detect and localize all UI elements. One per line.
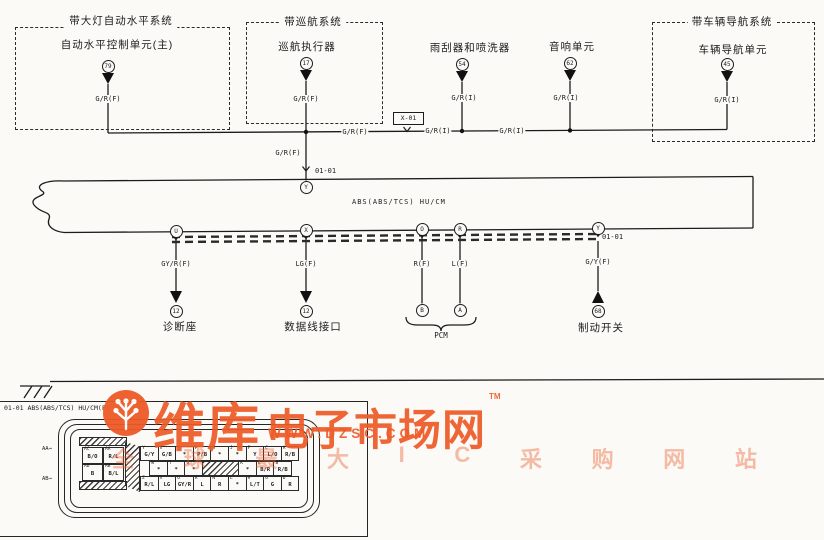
pinout-cell: L* bbox=[228, 476, 247, 491]
cruise-wire-label: G/R(F) bbox=[292, 95, 319, 103]
diag-pin: 12 bbox=[170, 305, 183, 318]
watermark-tagline: 全球最大IC采购网站 bbox=[112, 442, 757, 474]
main-wire-label-right: G/R(I) bbox=[498, 127, 525, 135]
watermark-tagline-char: C bbox=[454, 442, 470, 474]
watermark-tagline-char: 采 bbox=[520, 442, 542, 474]
datalink-label: 数据线接口 bbox=[284, 319, 342, 334]
pcm-pin-b: B bbox=[416, 304, 429, 317]
audio-wire-label: G/R(I) bbox=[552, 94, 579, 102]
watermark-tm: TM bbox=[489, 392, 501, 401]
ground-symbol bbox=[20, 386, 52, 398]
cruise-pin: 17 bbox=[300, 57, 313, 70]
watermark-tagline-char: I bbox=[399, 442, 405, 474]
pinout-cell: UGY/R bbox=[175, 476, 194, 491]
pcm-wire-label-a: L(F) bbox=[451, 260, 470, 268]
bus-label: ABS(ABS/TCS) HU/CM bbox=[352, 198, 446, 206]
pinout-cell: ZR/L bbox=[140, 476, 159, 491]
bus-bottom-pin-o: O bbox=[416, 223, 429, 236]
watermark-tagline-char: 购 bbox=[592, 442, 614, 474]
pinout-side-cell: ADB bbox=[82, 464, 103, 481]
watermark-tagline-char: 站 bbox=[735, 442, 757, 474]
bus-bottom-pin-x: X bbox=[300, 224, 313, 237]
audio-unit-label: 音响单元 bbox=[549, 39, 595, 54]
main-wire-label-left: G/R(F) bbox=[341, 128, 368, 136]
pinout-cell: DR bbox=[281, 476, 300, 491]
bus-bottom-pin-r: R bbox=[454, 223, 467, 236]
pcm-pin-a: A bbox=[454, 304, 467, 317]
watermark-tagline-char: 最 bbox=[255, 442, 277, 474]
headlamp-wire-label: G/R(F) bbox=[94, 95, 121, 103]
watermark-tagline-char: 网 bbox=[663, 442, 685, 474]
pinout-row: ZR/LXLGUGY/RRLNRL*HL/TGGDR bbox=[140, 476, 298, 491]
wiper-washer-label: 雨刮器和喷洗器 bbox=[430, 40, 511, 55]
pcm-label: PCM bbox=[434, 331, 448, 340]
bus-top-pin: Y bbox=[300, 181, 313, 194]
pcm-wire-label-b: R(F) bbox=[413, 260, 432, 268]
x01-junction-box: X-01 bbox=[393, 112, 424, 125]
pinout-cell: RL bbox=[193, 476, 212, 491]
brake-switch-label: 制动开关 bbox=[578, 320, 624, 335]
connector-marks bbox=[173, 127, 602, 240]
watermark-url: WWW.DZSC.COM bbox=[268, 426, 429, 441]
bus-bottom-pin-u: U bbox=[170, 225, 183, 238]
watermark-tagline-char: 大 bbox=[327, 442, 349, 474]
diag-socket-label: 诊断座 bbox=[163, 319, 198, 334]
brake-pin: 68 bbox=[592, 305, 605, 318]
navigation-system-title: 带车辆导航系统 bbox=[688, 14, 777, 29]
wiper-pin: 54 bbox=[456, 58, 469, 71]
headlamp-system-title: 带大灯自动水平系统 bbox=[65, 13, 177, 28]
connector-face-dashed-line bbox=[172, 234, 598, 242]
audio-pin: 62 bbox=[564, 57, 577, 70]
bus-top-connector-ref: 01-01 bbox=[315, 167, 336, 175]
diag-wire-label: GY/R(F) bbox=[160, 260, 192, 268]
main-wire-label-mid: G/R(I) bbox=[424, 127, 451, 135]
cruise-unit-label: 巡航执行器 bbox=[278, 39, 336, 54]
pinout-cell: NR bbox=[210, 476, 229, 491]
brake-wire-label: G/Y(F) bbox=[584, 258, 611, 266]
pinout-cell: HL/T bbox=[246, 476, 265, 491]
pinout-cell: XLG bbox=[158, 476, 177, 491]
watermark-tagline-char: 全 bbox=[112, 442, 134, 474]
cruise-system-title: 带巡航系统 bbox=[280, 14, 346, 29]
navigation-system-box bbox=[652, 22, 815, 142]
headlamp-unit-label: 自动水平控制单元(主) bbox=[61, 37, 174, 52]
navigation-wire-label: G/R(I) bbox=[713, 96, 740, 104]
wiper-wire-label: G/R(I) bbox=[450, 94, 477, 102]
side-block-bottom-cap bbox=[79, 481, 127, 490]
watermark-tagline-char: 球 bbox=[184, 442, 206, 474]
dzsc-logo-icon bbox=[103, 390, 149, 436]
cruise-lower-wire-label: G/R(F) bbox=[274, 149, 301, 157]
connector-face-ref: 01-01 bbox=[602, 233, 623, 241]
pinout-side-cell: ACB/O bbox=[82, 447, 103, 464]
pinout-title: 01-01 ABS(ABS/TCS) HU/CM(F) bbox=[4, 404, 110, 412]
side-marker-aa: AA→ bbox=[42, 446, 52, 452]
pinout-cell: GG bbox=[263, 476, 282, 491]
cruise-system-box bbox=[246, 22, 383, 124]
datalink-pin: 12 bbox=[300, 305, 313, 318]
headlamp-pin: 79 bbox=[102, 60, 115, 73]
wiring-diagram-page: 带大灯自动水平系统 自动水平控制单元(主) 79 G/R(F) 带巡航系统 巡航… bbox=[0, 0, 824, 540]
side-marker-ab: AB→ bbox=[42, 476, 52, 482]
datalink-wire-label: LG(F) bbox=[294, 260, 317, 268]
navigation-pin: 45 bbox=[721, 58, 734, 71]
navigation-unit-label: 车辆导航单元 bbox=[699, 42, 768, 57]
